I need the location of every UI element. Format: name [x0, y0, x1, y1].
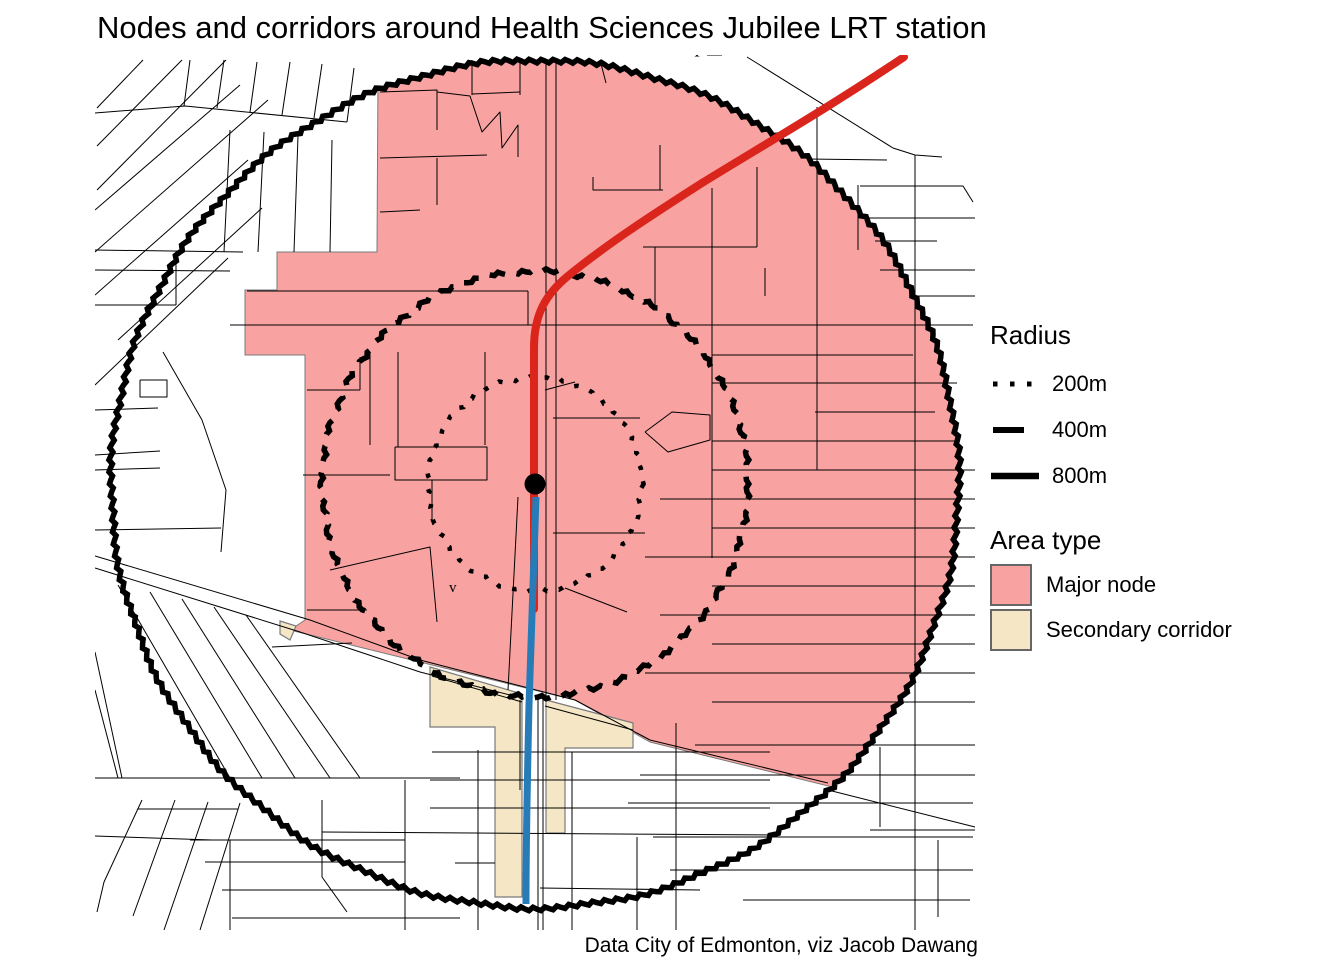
radius-legend-title: Radius [990, 320, 1290, 351]
street-segment [828, 790, 975, 827]
map-text-label: p [694, 33, 707, 57]
legend: Radius 200m 400m 800m Area type Major no… [990, 320, 1290, 652]
street-segment [807, 159, 887, 160]
street-segment [347, 68, 354, 122]
street-segment [294, 136, 298, 252]
area-legend-item-secondary-corridor: Secondary corridor [990, 607, 1290, 652]
radius-legend-item-800m: 800m [990, 453, 1290, 499]
street-segment [95, 652, 122, 778]
figure-caption: Data City of Edmonton, viz Jacob Dawang [585, 934, 978, 958]
street-segment [217, 60, 224, 108]
street-segment [164, 802, 208, 930]
street-segment [860, 186, 973, 202]
area-legend-label: Major node [1046, 572, 1156, 598]
street-segment [95, 270, 230, 271]
dashed-line-icon [990, 424, 1040, 436]
street-segment [314, 64, 322, 118]
street-segment [97, 800, 142, 912]
street-segment [182, 599, 295, 778]
street-segment [97, 60, 143, 108]
street-segment [163, 352, 226, 552]
radius-legend-label: 400m [1052, 417, 1107, 443]
secondary-corridor-swatch [990, 609, 1032, 651]
major-node-swatch [990, 564, 1032, 606]
street-segment [200, 803, 240, 930]
street-segment [95, 836, 212, 840]
street-segment [95, 451, 160, 455]
radius-legend-label: 800m [1052, 463, 1107, 489]
street-segment [95, 468, 160, 470]
street-segment [95, 250, 243, 252]
street-segment [258, 132, 264, 252]
street-segment [330, 140, 332, 252]
radius-legend-item-400m: 400m [990, 407, 1290, 453]
street-segment [97, 60, 226, 190]
dotted-line-icon [990, 378, 1040, 390]
area-legend-label: Secondary corridor [1046, 617, 1232, 643]
figure: { "title": "Nodes and corridors around H… [0, 0, 1344, 960]
radius-legend-label: 200m [1052, 371, 1107, 397]
street-segment [97, 60, 182, 146]
street-segment [250, 62, 257, 112]
street-segment [282, 62, 290, 115]
area-legend-title: Area type [990, 525, 1290, 556]
street-segment [95, 85, 240, 210]
area-legend-item-major-node: Major node [990, 562, 1290, 607]
street-segment [95, 690, 118, 778]
secondary-corridor-area [546, 700, 633, 833]
radius-legend-item-200m: 200m [990, 361, 1290, 407]
station-dot [525, 474, 546, 495]
street-segment [95, 408, 158, 410]
solid-line-icon [990, 470, 1040, 482]
map-layers: pv [95, 33, 975, 930]
map-text-label: v [449, 580, 457, 596]
street-segment [133, 800, 175, 916]
street-segment [95, 106, 347, 122]
street-segment [140, 380, 167, 397]
major-node-area [245, 60, 959, 787]
